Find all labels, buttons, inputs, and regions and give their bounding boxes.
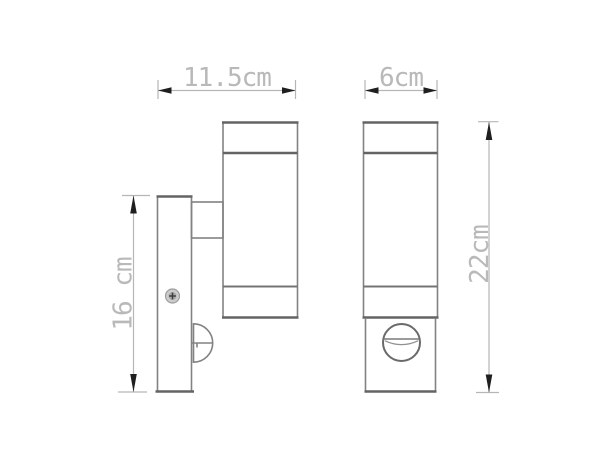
arrow-down-icon (130, 374, 137, 392)
arrow-down-icon (486, 375, 493, 393)
dimension-label: 22cm (465, 225, 495, 284)
lamp-body-front (363, 122, 439, 318)
arrow-right-icon (424, 87, 438, 94)
dimension-body-width: 6cm (365, 63, 437, 99)
arrow-left-icon (365, 87, 379, 94)
arrow-up-icon (486, 122, 493, 140)
dimension-backplate-height: 16 cm (109, 196, 151, 393)
arrow-right-icon (282, 87, 296, 94)
connecting-arm (192, 202, 224, 238)
arrow-left-icon (158, 87, 172, 94)
side-view (156, 122, 299, 392)
sensor-housing (365, 318, 437, 392)
dimension-overall-depth: 11.5cm (158, 63, 296, 99)
drawing-canvas: 11.5cm 6cm 16 cm 22cm (0, 0, 600, 466)
dimension-label: 16 cm (109, 257, 139, 331)
sensor-lens (383, 324, 420, 361)
dimension-overall-height: 22cm (465, 122, 499, 393)
mounting-screw (166, 289, 180, 303)
drawing-page: 11.5cm 6cm 16 cm 22cm (0, 0, 600, 466)
arrow-up-icon (130, 196, 137, 214)
dimension-label: 6cm (379, 63, 423, 93)
dimension-label: 11.5cm (183, 63, 271, 93)
sensor-dome-side (192, 324, 213, 362)
lamp-body-side (222, 122, 299, 318)
sensor-lens-underarc (385, 341, 418, 345)
front-view (363, 122, 439, 392)
